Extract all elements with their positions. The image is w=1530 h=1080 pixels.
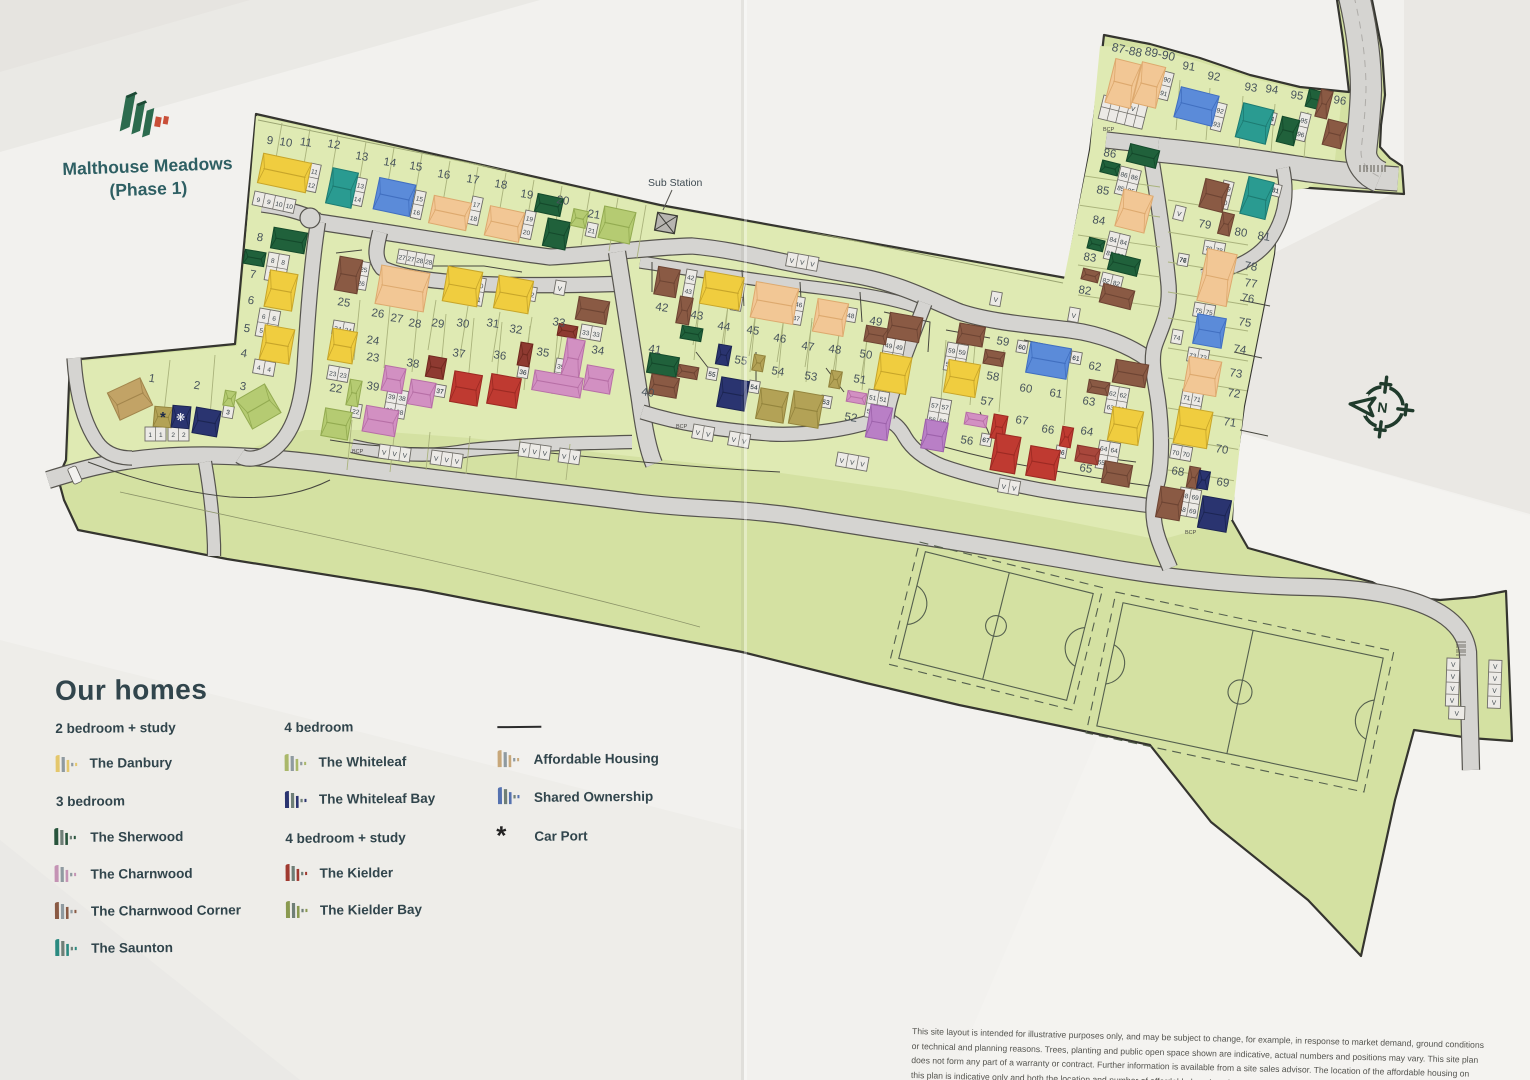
svg-text:60: 60 <box>1019 382 1034 396</box>
svg-text:29: 29 <box>431 317 446 331</box>
svg-text:42: 42 <box>655 301 670 315</box>
svg-text:22: 22 <box>329 382 344 396</box>
svg-text:N: N <box>1377 399 1389 416</box>
svg-text:Car Port: Car Port <box>534 828 588 843</box>
svg-text:Affordable Housing: Affordable Housing <box>534 751 659 767</box>
svg-text:34: 34 <box>591 344 606 358</box>
svg-text:73: 73 <box>1229 367 1244 381</box>
svg-text:78: 78 <box>1244 260 1259 274</box>
svg-text:The Whiteleaf Bay: The Whiteleaf Bay <box>319 791 436 807</box>
svg-text:39: 39 <box>366 380 381 394</box>
svg-text:Our homes: Our homes <box>55 674 208 706</box>
svg-text:71: 71 <box>1223 416 1238 430</box>
svg-text:67: 67 <box>1015 414 1030 428</box>
svg-text:3 bedroom: 3 bedroom <box>56 793 125 809</box>
svg-text:15: 15 <box>409 160 424 174</box>
svg-text:53: 53 <box>804 370 819 384</box>
svg-text:56: 56 <box>960 434 975 448</box>
svg-text:Shared Ownership: Shared Ownership <box>534 789 653 805</box>
svg-text:BCP: BCP <box>676 424 688 430</box>
svg-text:45: 45 <box>746 324 761 338</box>
svg-text:95: 95 <box>1290 89 1305 103</box>
svg-text:30: 30 <box>456 317 471 331</box>
svg-text:32: 32 <box>509 323 524 337</box>
svg-text:20: 20 <box>556 194 571 208</box>
svg-text:82: 82 <box>1078 284 1093 298</box>
svg-text:76: 76 <box>1241 292 1256 306</box>
svg-text:47: 47 <box>801 340 816 354</box>
svg-text:59: 59 <box>996 335 1011 349</box>
svg-text:58: 58 <box>986 370 1001 384</box>
svg-text:*: * <box>160 409 166 426</box>
svg-text:25: 25 <box>337 296 352 310</box>
svg-text:77: 77 <box>1244 277 1259 291</box>
svg-text:72: 72 <box>1227 387 1242 401</box>
svg-text:The Danbury: The Danbury <box>90 755 173 771</box>
svg-text:11: 11 <box>299 136 313 150</box>
svg-text:The Saunton: The Saunton <box>91 940 173 956</box>
svg-text:52: 52 <box>844 411 859 425</box>
svg-text:The Whiteleaf: The Whiteleaf <box>319 754 407 770</box>
svg-text:Sub Station: Sub Station <box>648 177 702 189</box>
svg-text:69: 69 <box>1216 476 1231 490</box>
svg-text:96: 96 <box>1333 94 1348 108</box>
svg-text:1: 1 <box>159 432 163 439</box>
svg-text:24: 24 <box>366 334 381 348</box>
svg-text:31: 31 <box>486 317 501 331</box>
svg-text:❋: ❋ <box>176 412 185 424</box>
svg-text:BCP: BCP <box>1103 127 1115 133</box>
svg-text:(Phase 1): (Phase 1) <box>109 178 187 201</box>
svg-text:65: 65 <box>1079 462 1094 476</box>
svg-text:84: 84 <box>1092 214 1107 228</box>
svg-text:85: 85 <box>1096 184 1111 198</box>
svg-text:37: 37 <box>452 347 467 361</box>
svg-text:33: 33 <box>552 316 567 330</box>
svg-text:12: 12 <box>327 138 342 152</box>
svg-text:74: 74 <box>1233 343 1248 357</box>
svg-text:The Charnwood Corner: The Charnwood Corner <box>91 902 242 918</box>
svg-text:2 bedroom + study: 2 bedroom + study <box>55 720 176 736</box>
svg-text:92: 92 <box>1207 70 1222 84</box>
svg-text:70: 70 <box>1215 443 1230 457</box>
svg-text:79: 79 <box>1198 218 1213 232</box>
svg-text:94: 94 <box>1265 83 1280 97</box>
svg-text:43: 43 <box>690 309 705 323</box>
svg-text:13: 13 <box>355 150 370 164</box>
svg-text:4 bedroom: 4 bedroom <box>284 719 353 735</box>
svg-text:91: 91 <box>1182 60 1197 74</box>
svg-text:17: 17 <box>466 173 481 187</box>
svg-text:23: 23 <box>366 351 381 365</box>
svg-text:2: 2 <box>171 432 175 439</box>
svg-text:80: 80 <box>1234 226 1249 240</box>
svg-text:51: 51 <box>853 373 868 387</box>
svg-text:46: 46 <box>773 332 788 346</box>
svg-text:27: 27 <box>390 312 405 326</box>
svg-text:93: 93 <box>1244 81 1259 95</box>
svg-text:54: 54 <box>771 365 786 379</box>
svg-text:64: 64 <box>1080 425 1095 439</box>
svg-text:4 bedroom + study: 4 bedroom + study <box>285 830 406 846</box>
svg-text:38: 38 <box>406 357 421 371</box>
svg-text:40: 40 <box>641 386 656 400</box>
svg-text:14: 14 <box>383 156 398 170</box>
svg-text:49: 49 <box>869 315 884 329</box>
svg-text:81: 81 <box>1257 230 1272 244</box>
svg-text:The Charnwood: The Charnwood <box>91 866 193 882</box>
svg-text:18: 18 <box>494 178 509 192</box>
svg-text:35: 35 <box>536 346 551 360</box>
svg-text:41: 41 <box>648 343 663 357</box>
svg-text:21: 21 <box>587 208 602 222</box>
svg-text:86: 86 <box>1103 147 1118 161</box>
svg-text:61: 61 <box>1049 387 1064 401</box>
svg-text:BCP: BCP <box>1185 530 1197 536</box>
svg-text:66: 66 <box>1041 423 1056 437</box>
svg-text:19: 19 <box>520 188 535 202</box>
svg-text:68: 68 <box>1171 465 1186 479</box>
svg-text:The Sherwood: The Sherwood <box>90 829 183 845</box>
svg-text:10: 10 <box>279 136 294 150</box>
svg-text:48: 48 <box>828 343 843 357</box>
svg-text:The Kielder Bay: The Kielder Bay <box>320 902 423 918</box>
svg-text:1: 1 <box>148 432 152 439</box>
svg-text:44: 44 <box>717 320 732 334</box>
svg-text:83: 83 <box>1083 251 1098 265</box>
svg-text:The Kielder: The Kielder <box>320 865 394 881</box>
svg-text:16: 16 <box>437 168 452 182</box>
svg-text:BCP: BCP <box>352 449 364 455</box>
svg-text:26: 26 <box>371 307 386 321</box>
svg-text:63: 63 <box>1082 395 1097 409</box>
svg-text:62: 62 <box>1088 360 1103 374</box>
svg-text:57: 57 <box>980 395 995 409</box>
svg-text:50: 50 <box>859 348 874 362</box>
svg-text:28: 28 <box>408 317 423 331</box>
svg-text:75: 75 <box>1238 316 1253 330</box>
svg-text:2: 2 <box>182 432 186 439</box>
svg-text:36: 36 <box>493 349 508 363</box>
svg-text:*: * <box>496 820 507 850</box>
